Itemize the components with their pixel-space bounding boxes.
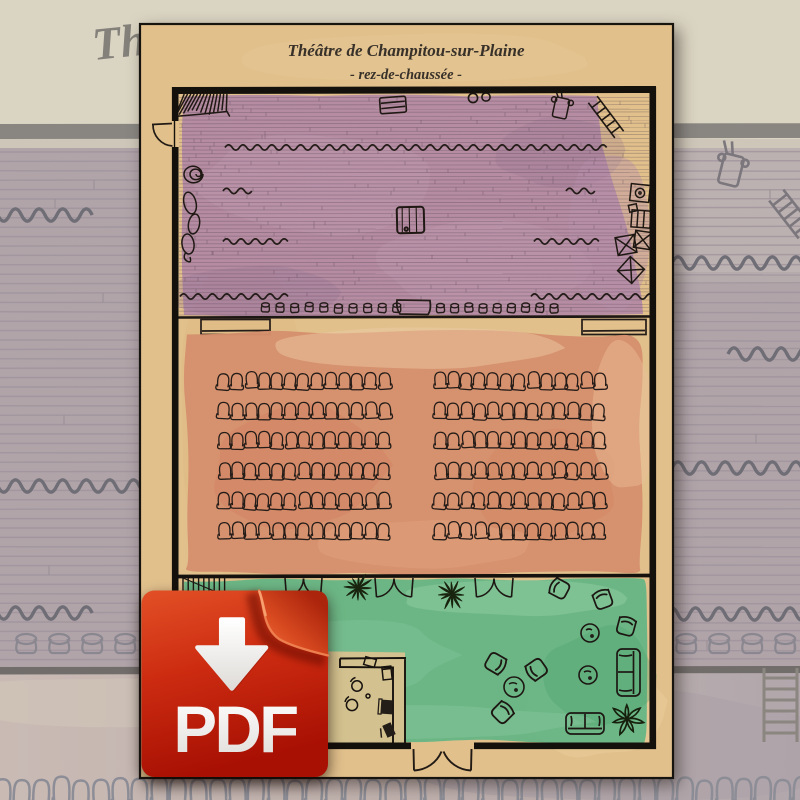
- svg-text:Théâtre de Champitou-sur-Plain: Théâtre de Champitou-sur-Plaine: [287, 41, 525, 60]
- svg-text:- rez-de-chaussée -: - rez-de-chaussée -: [350, 67, 462, 83]
- svg-text:PDF: PDF: [173, 693, 297, 766]
